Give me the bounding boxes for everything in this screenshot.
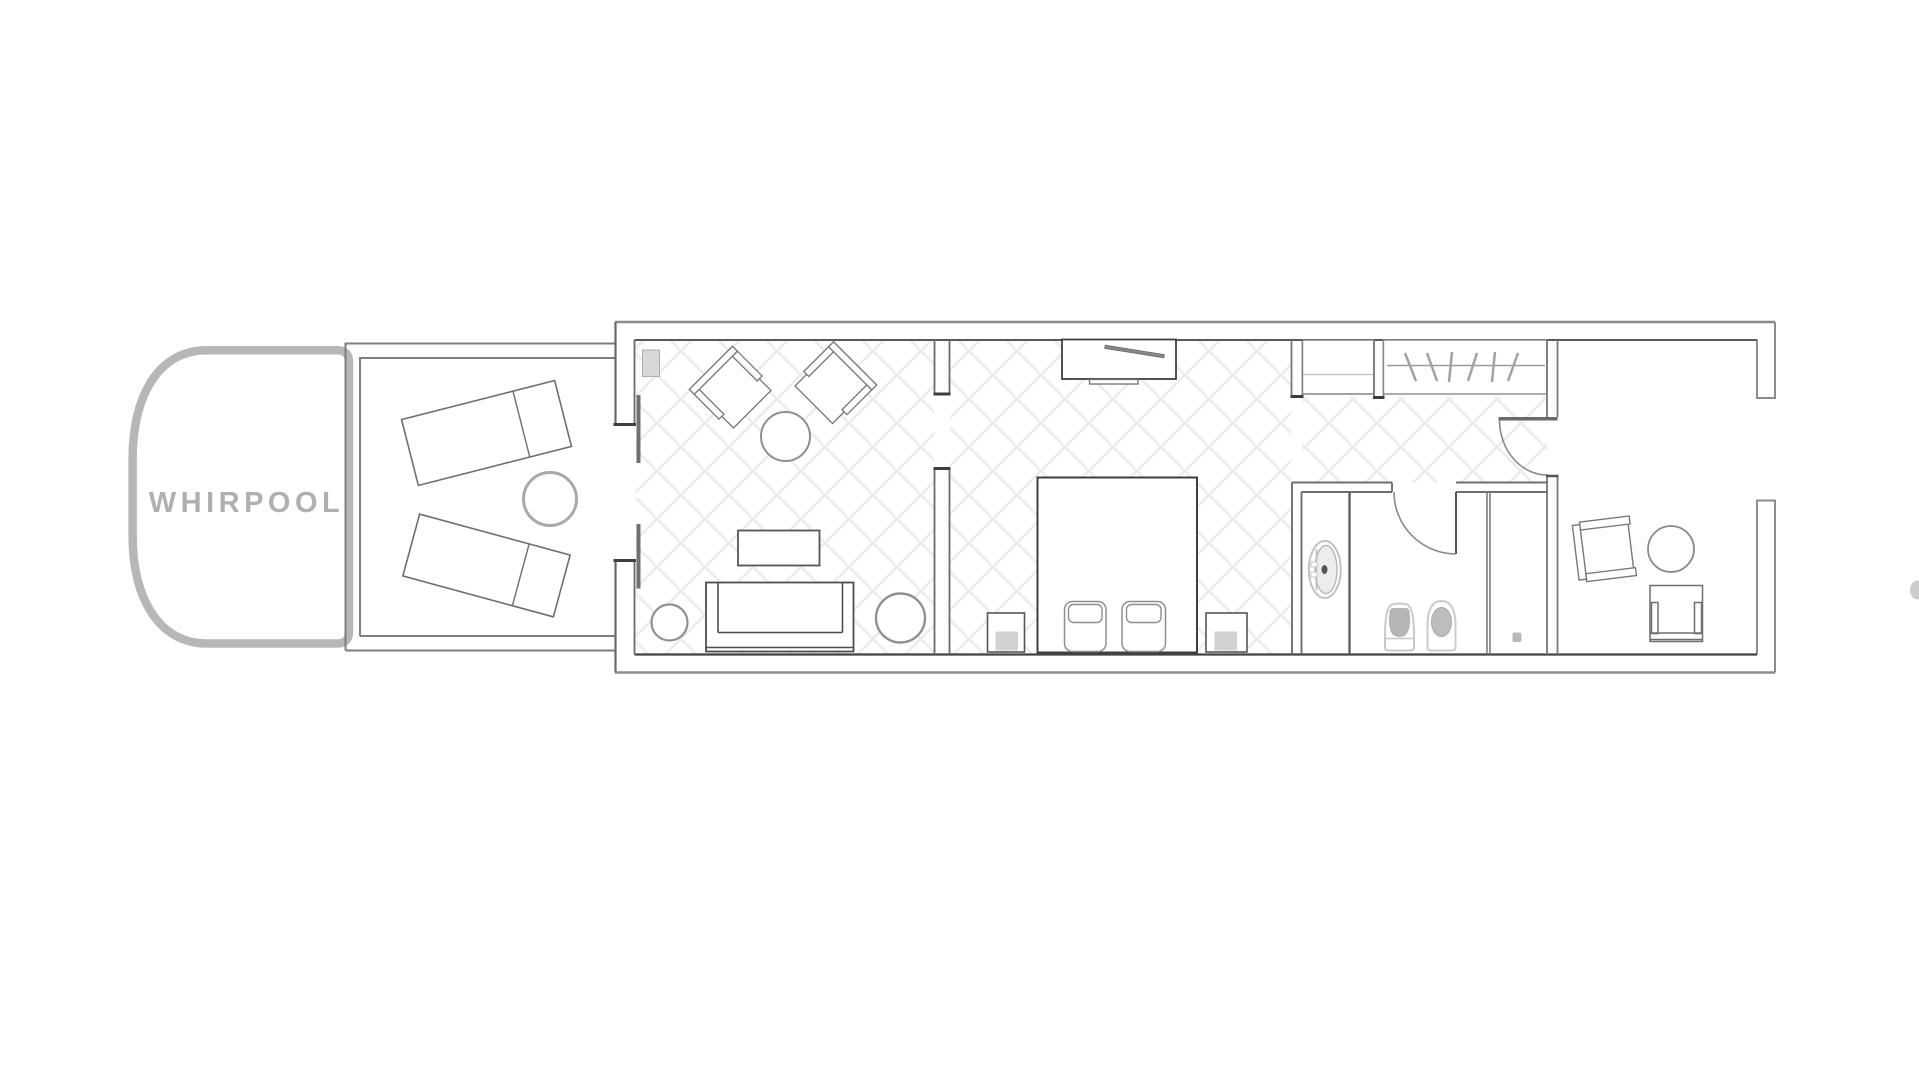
svg-text:WHIRPOOL: WHIRPOOL (149, 487, 345, 519)
